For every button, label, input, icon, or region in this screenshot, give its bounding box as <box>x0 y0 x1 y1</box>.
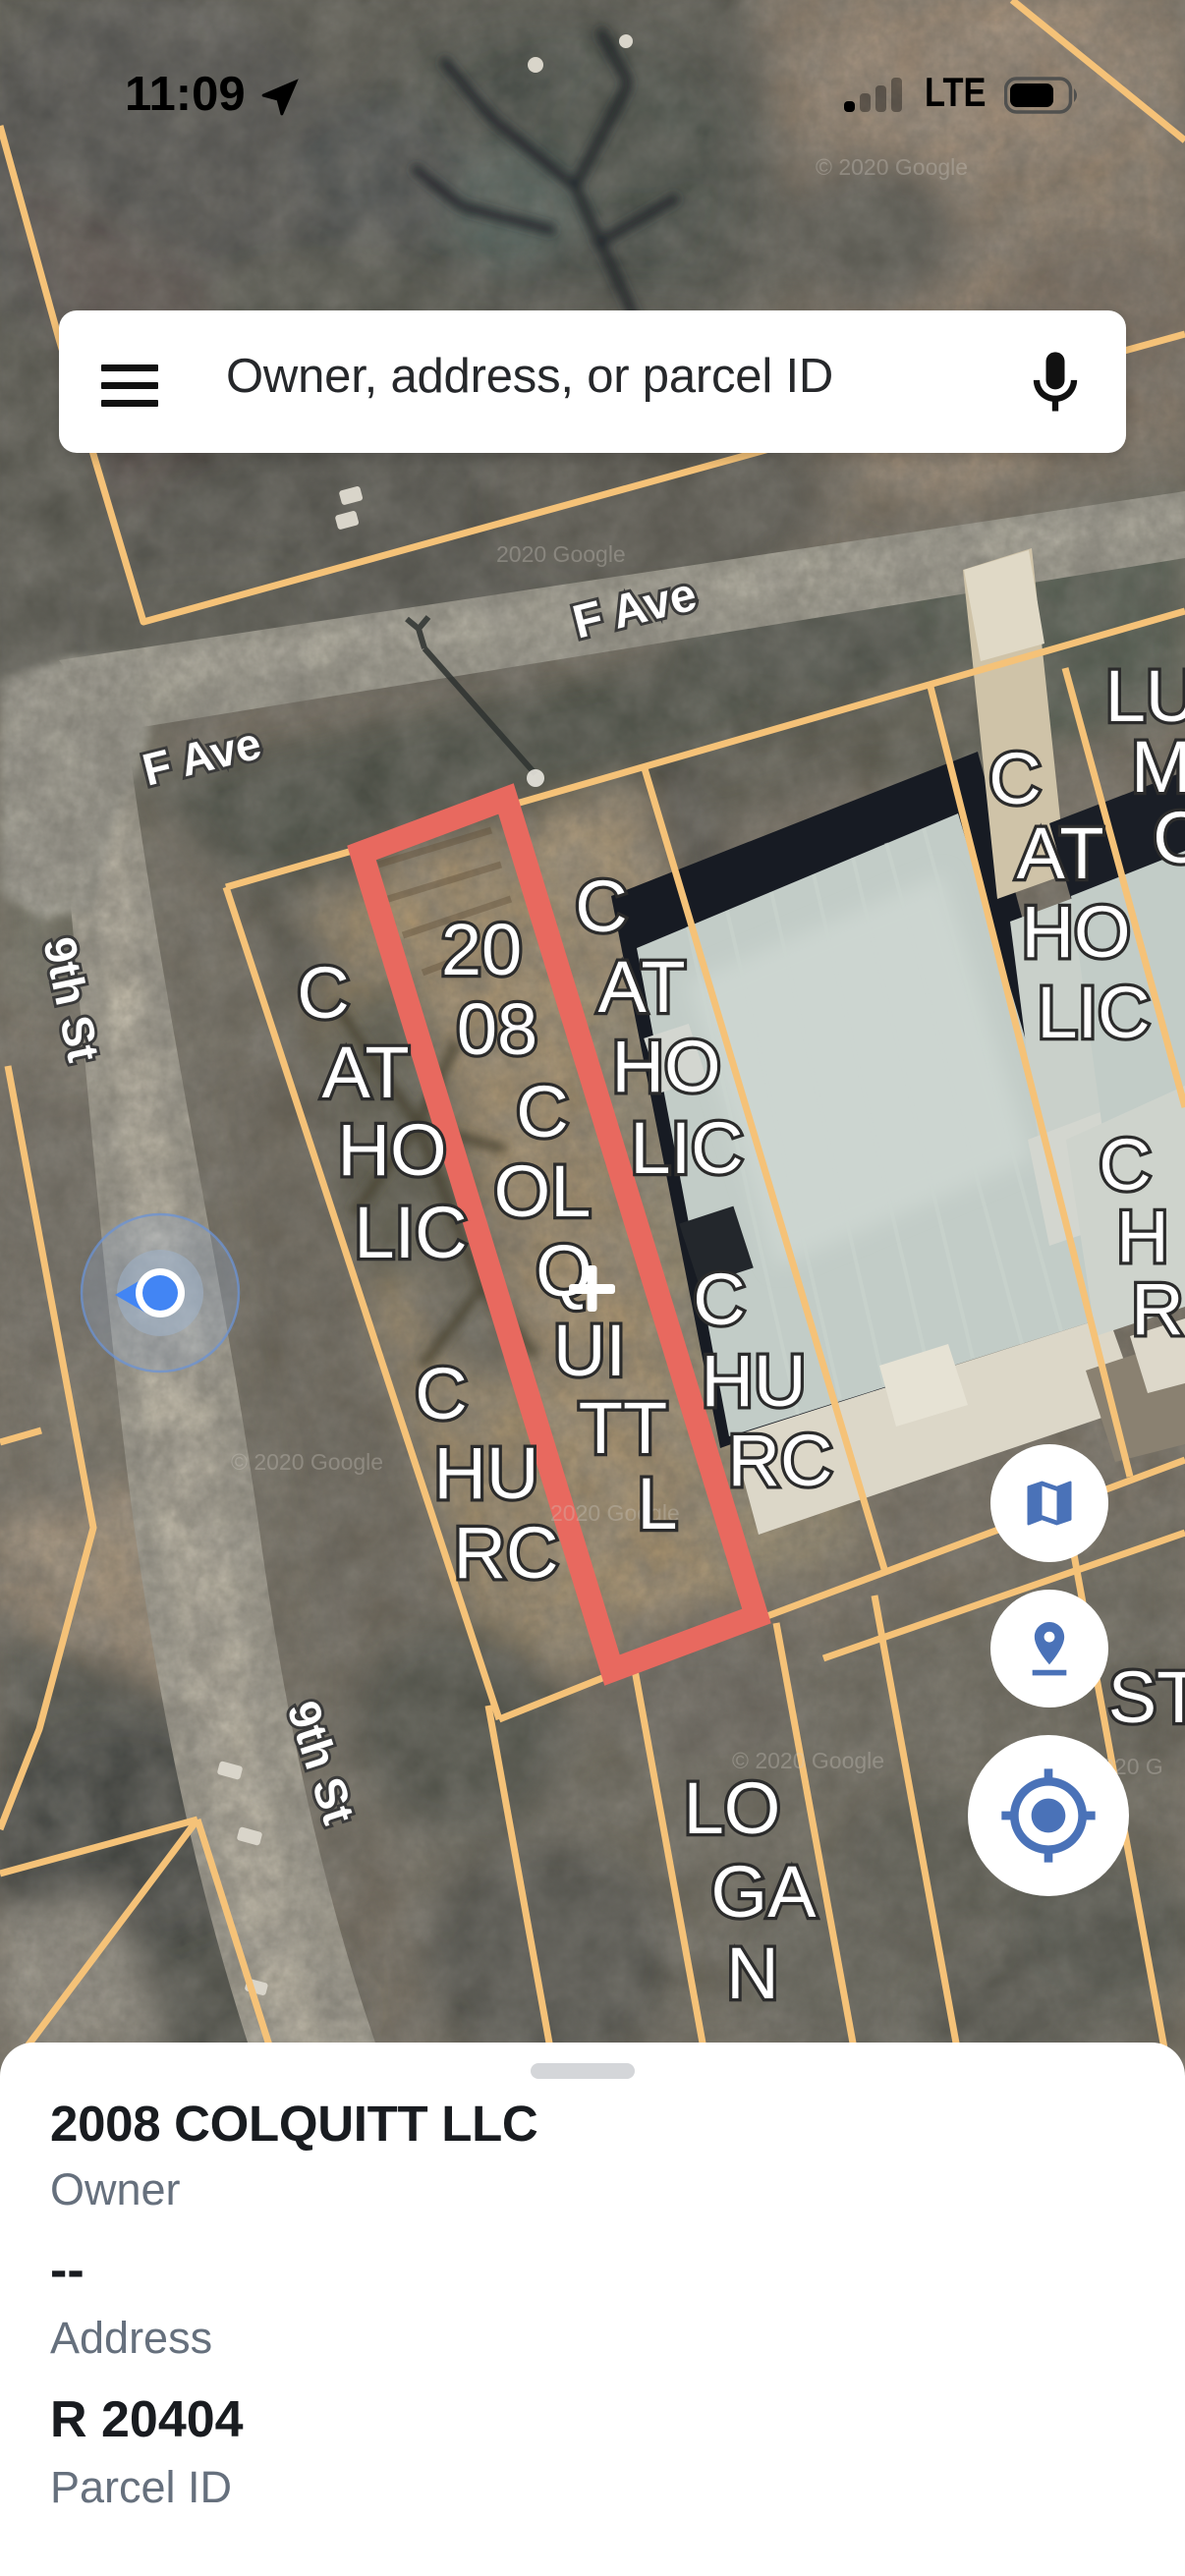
svg-text:AT: AT <box>1016 812 1103 894</box>
svg-text:20: 20 <box>441 909 522 990</box>
svg-text:L: L <box>637 1463 677 1544</box>
svg-text:© 2020 Google: © 2020 Google <box>816 154 968 180</box>
svg-text:GA: GA <box>711 1851 818 1932</box>
svg-text:UI: UI <box>553 1310 626 1391</box>
svg-text:AT: AT <box>321 1032 409 1113</box>
svg-text:HO: HO <box>1022 891 1131 973</box>
svg-text:Q: Q <box>536 1230 592 1312</box>
svg-text:2020 Google: 2020 Google <box>496 541 626 567</box>
svg-text:C: C <box>415 1353 467 1434</box>
svg-text:LU: LU <box>1105 655 1185 737</box>
svg-text:LIC: LIC <box>630 1107 743 1189</box>
svg-text:C: C <box>1153 797 1185 878</box>
svg-text:C: C <box>693 1259 745 1340</box>
svg-text:H: H <box>1116 1196 1168 1277</box>
svg-text:TT: TT <box>579 1387 667 1469</box>
svg-text:AT: AT <box>597 946 685 1028</box>
svg-text:RC: RC <box>454 1512 559 1594</box>
svg-text:R: R <box>1131 1268 1183 1350</box>
svg-text:HO: HO <box>612 1026 721 1107</box>
svg-text:C: C <box>297 952 349 1034</box>
svg-text:C: C <box>988 738 1041 819</box>
svg-text:RC: RC <box>728 1420 833 1501</box>
svg-text:© 2020 Google: © 2020 Google <box>231 1449 383 1475</box>
svg-text:ST: ST <box>1108 1656 1185 1738</box>
svg-text:LIC: LIC <box>354 1192 467 1273</box>
svg-text:OL: OL <box>494 1150 592 1232</box>
svg-text:LIC: LIC <box>1037 972 1150 1053</box>
svg-text:HU: HU <box>702 1340 807 1422</box>
svg-text:C: C <box>575 866 627 947</box>
svg-text:N: N <box>726 1932 778 2014</box>
svg-text:M: M <box>1131 726 1185 808</box>
svg-text:HU: HU <box>434 1432 539 1514</box>
svg-text:08: 08 <box>457 988 537 1070</box>
svg-text:C: C <box>516 1071 568 1152</box>
svg-text:HO: HO <box>338 1109 447 1191</box>
svg-text:LO: LO <box>684 1767 781 1849</box>
svg-text:C: C <box>1099 1124 1151 1205</box>
